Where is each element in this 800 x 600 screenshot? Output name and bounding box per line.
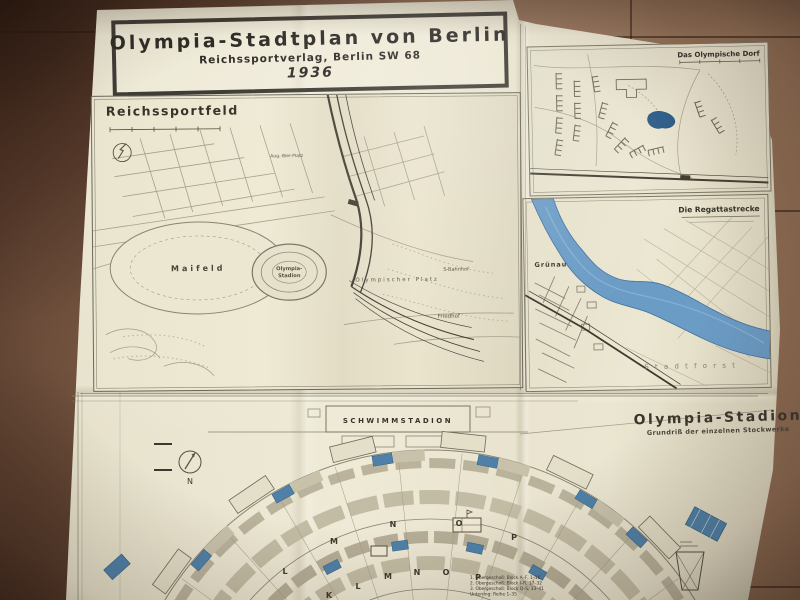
legend-line: 3. Obergeschoß: Block Q–S, 33–41 (470, 586, 544, 592)
title-box: Olympia-Stadtplan von Berlin Reichssport… (111, 12, 509, 97)
s-bahnhof-label: S-Bahnhof (443, 267, 469, 273)
village-roads (534, 51, 738, 183)
edge-ticks (154, 444, 172, 470)
main-map-panel: Maifeld Olympia- Stadion Olympischer Pla… (91, 92, 524, 392)
block-letter: L (282, 567, 287, 576)
inset-dorf-title: Das Olympische Dorf (677, 50, 760, 60)
compass-label: N (187, 477, 193, 486)
stadion-label-2: Stadion (278, 273, 301, 279)
legend-line: Unterring: Reihe 1–35 (470, 592, 517, 598)
stadium-heading: Olympia-Stadion Grundriß der einzelnen S… (628, 407, 800, 437)
year-label: 1936 (287, 64, 334, 81)
village-lake (647, 111, 674, 129)
block-letter: M (384, 572, 392, 581)
legend-line: 2. Obergeschoß: Block I–R, 17–32 (470, 581, 542, 587)
stadion-label-1: Olympia- (276, 266, 302, 272)
main-map-title: Reichssportfeld (106, 103, 239, 119)
inset-regatta-subtitle-rules (682, 216, 760, 222)
olympischer-platz-label: Olympischer Platz (355, 277, 439, 284)
fold-line (520, 24, 521, 390)
friedhof-label: Friedhof (438, 314, 461, 320)
maifeld-label: Maifeld (171, 264, 226, 273)
housing-rows (553, 69, 725, 159)
plank-seam (0, 31, 96, 33)
stadtforst-label: S t a d t f o r s t (644, 361, 737, 371)
inset-regatta-drawing: Grünau S t a d t f o r s t Die Regattast… (523, 195, 770, 391)
compass-icon: N (179, 451, 201, 486)
block-letter: N (414, 568, 421, 577)
blue-annex (685, 507, 726, 542)
main-map-drawing: Maifeld Olympia- Stadion Olympischer Pla… (92, 93, 523, 391)
inset-dorf-drawing: Das Olympische Dorf (527, 43, 770, 196)
block-letter: K (326, 591, 333, 600)
bier-platz-label: Aug.-Bier-Platz (270, 153, 304, 159)
block-letter: O (456, 519, 463, 528)
village-railway (530, 164, 768, 188)
inset-dorf-scale-bar (680, 59, 760, 65)
block-letter: M (330, 537, 338, 546)
schwimmstadion-label: SCHWIMMSTADION (343, 417, 453, 425)
scale-bar (110, 126, 220, 132)
block-letter: L (355, 582, 360, 591)
block-letter: P (511, 533, 517, 542)
gruenau-label: Grünau (534, 260, 567, 269)
block-letter: O (443, 568, 450, 577)
legend-line: 1. Obergeschoß: Block A–F, 1–16 (470, 575, 541, 581)
inset-dorf-panel: Das Olympische Dorf (526, 41, 771, 196)
map-title: Olympia-Stadtplan von Berlin (110, 23, 510, 54)
gruenau-town (535, 276, 604, 383)
compass-icon (113, 144, 131, 162)
fold-line (525, 26, 526, 390)
inset-regatta-panel: Grünau S t a d t f o r s t Die Regattast… (522, 194, 771, 392)
photo-of-folded-map: Olympia-Stadtplan von Berlin Reichssport… (0, 0, 800, 600)
river-shape (531, 195, 770, 363)
blue-room-left (104, 554, 131, 580)
inset-regatta-title: Die Regattastrecke (678, 204, 759, 214)
fold-line (80, 393, 768, 394)
tower-structure (676, 542, 704, 590)
sector-aisles (182, 454, 679, 600)
block-letter: N (390, 520, 397, 529)
railway-lines (328, 93, 484, 362)
publisher-line: Reichssportverlag, Berlin SW 68 (199, 49, 421, 66)
